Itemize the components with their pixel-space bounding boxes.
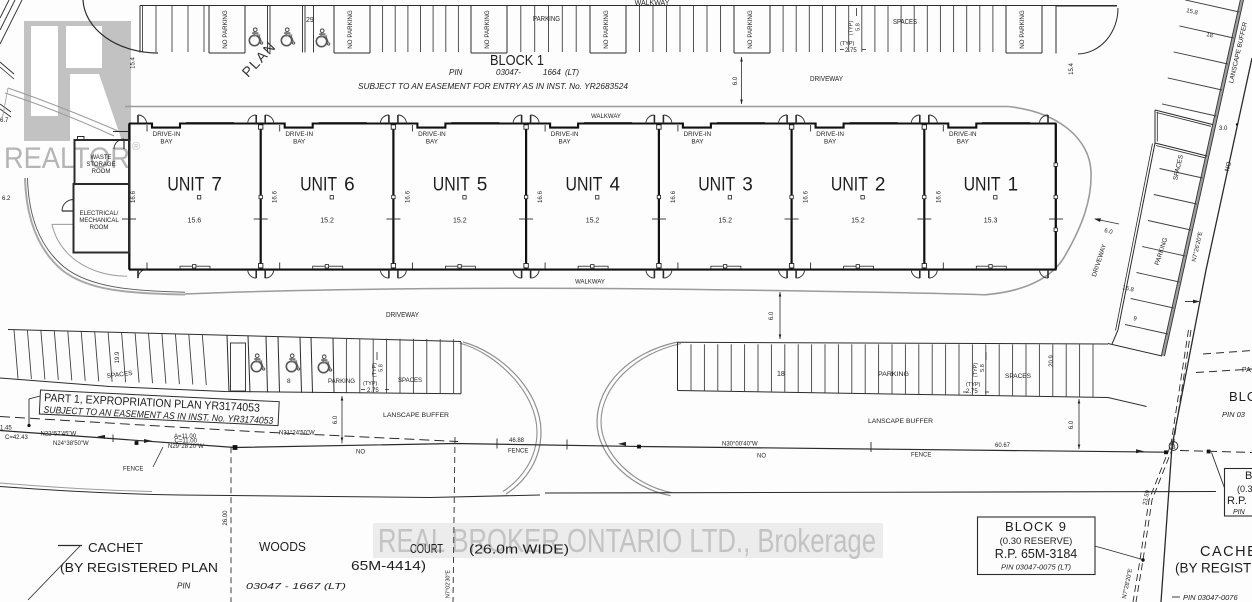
- svg-text:3: 3: [742, 175, 753, 196]
- svg-text:SPACES: SPACES: [1005, 373, 1032, 380]
- svg-text:15.2: 15.2: [851, 218, 865, 225]
- svg-text:16.6: 16.6: [803, 190, 810, 203]
- svg-text:46.88: 46.88: [509, 438, 525, 444]
- svg-text:DRIVEWAY: DRIVEWAY: [386, 312, 419, 319]
- svg-text:DRIVE-IN: DRIVE-IN: [949, 131, 977, 138]
- svg-text:ROOM: ROOM: [90, 225, 109, 231]
- svg-text:REAL BROKER ONTARIO LTD., Brok: REAL BROKER ONTARIO LTD., Brokerage: [378, 522, 876, 559]
- svg-text:(BY REGISTERED PLAN: (BY REGISTERED PLAN: [60, 560, 218, 575]
- svg-text:PIN 03047-0076: PIN 03047-0076: [1183, 593, 1238, 602]
- svg-text:2: 2: [875, 175, 886, 196]
- svg-text:(TYP): (TYP): [372, 363, 378, 378]
- svg-text:FENCE: FENCE: [911, 453, 931, 459]
- svg-text:PIN 03: PIN 03: [1222, 410, 1246, 419]
- svg-text:B: B: [1245, 470, 1252, 482]
- svg-text:1.45: 1.45: [0, 426, 12, 432]
- svg-text:ROOM: ROOM: [92, 169, 111, 175]
- svg-text:16.6: 16.6: [670, 190, 677, 203]
- svg-text:PIN: PIN: [449, 68, 463, 77]
- svg-text:(LT): (LT): [565, 68, 579, 77]
- svg-text:FENCE: FENCE: [508, 449, 528, 455]
- svg-text:SPACES: SPACES: [893, 19, 917, 26]
- svg-text:DRIVE-IN: DRIVE-IN: [816, 131, 844, 138]
- svg-text:26.00: 26.00: [223, 510, 229, 526]
- svg-text:LANSCAPE BUFFER: LANSCAPE BUFFER: [868, 418, 933, 425]
- svg-text:NO: NO: [757, 454, 766, 460]
- svg-text:6.0: 6.0: [733, 76, 739, 85]
- svg-text:DRIVE-IN: DRIVE-IN: [285, 131, 313, 138]
- svg-text:PA: PA: [1242, 367, 1251, 374]
- svg-text:2.75: 2.75: [966, 389, 978, 395]
- svg-text:16.6: 16.6: [935, 190, 942, 203]
- svg-text:(0.3: (0.3: [1237, 484, 1252, 494]
- svg-text:UNIT: UNIT: [831, 175, 868, 196]
- svg-text:NO PARKING: NO PARKING: [222, 10, 229, 49]
- svg-text:DRIVEWAY: DRIVEWAY: [810, 76, 843, 83]
- svg-text:15.3: 15.3: [984, 218, 998, 225]
- svg-text:65M-4414): 65M-4414): [351, 558, 426, 573]
- svg-text:15.6: 15.6: [188, 218, 202, 225]
- svg-text:(BY REGIST: (BY REGIST: [1175, 561, 1251, 576]
- svg-text:BAY: BAY: [293, 139, 306, 146]
- svg-text:(0.30 RESERVE): (0.30 RESERVE): [1000, 536, 1073, 547]
- svg-text:LANSCAPE BUFFER: LANSCAPE BUFFER: [383, 412, 449, 419]
- svg-text:N29°28'20"W: N29°28'20"W: [168, 444, 204, 450]
- svg-text:FENCE: FENCE: [123, 467, 143, 473]
- svg-text:C=42.43: C=42.43: [5, 435, 29, 441]
- svg-text:R.P.: R.P.: [1227, 495, 1247, 507]
- svg-text:NO PARKING: NO PARKING: [603, 10, 610, 49]
- svg-text:4: 4: [610, 175, 621, 196]
- svg-text:03047-: 03047-: [496, 68, 521, 77]
- svg-text:(TYP): (TYP): [966, 382, 981, 388]
- svg-text:BAY: BAY: [691, 139, 704, 146]
- svg-text:5: 5: [477, 175, 488, 196]
- svg-text:5.8: 5.8: [856, 23, 862, 31]
- svg-text:5.8: 5.8: [980, 364, 986, 372]
- svg-text:3.0: 3.0: [1219, 126, 1228, 132]
- svg-text:SPACES: SPACES: [398, 377, 423, 384]
- svg-text:DRIVE-IN: DRIVE-IN: [684, 131, 712, 138]
- svg-text:60.67: 60.67: [995, 443, 1011, 449]
- svg-text:NO PARKING: NO PARKING: [747, 10, 754, 49]
- svg-text:PIN 03047-0075 (LT): PIN 03047-0075 (LT): [1001, 563, 1071, 572]
- svg-text:15.2: 15.2: [586, 218, 600, 225]
- svg-text:ELECTRICAL/: ELECTRICAL/: [80, 211, 119, 217]
- svg-text:6.0: 6.0: [1069, 420, 1075, 429]
- svg-text:COURT: COURT: [410, 541, 443, 556]
- svg-text:16.6: 16.6: [537, 190, 544, 203]
- svg-text:6: 6: [344, 175, 355, 196]
- svg-text:15.2: 15.2: [320, 218, 334, 225]
- svg-text:R.P. 65M-3184: R.P. 65M-3184: [995, 547, 1078, 561]
- svg-text:BLOCK 1: BLOCK 1: [490, 52, 544, 69]
- svg-text:STORAGE: STORAGE: [86, 162, 115, 168]
- svg-text:WOODS: WOODS: [259, 539, 306, 554]
- svg-text:2.75: 2.75: [845, 48, 857, 54]
- svg-text:2.75: 2.75: [367, 388, 379, 394]
- svg-text:WASTE: WASTE: [90, 155, 111, 161]
- svg-text:16.6: 16.6: [130, 190, 137, 203]
- svg-text:N30°00'40"W: N30°00'40"W: [722, 442, 758, 448]
- svg-text:UNIT: UNIT: [167, 175, 204, 196]
- svg-text:N7°02'30"E: N7°02'30"E: [446, 570, 452, 598]
- svg-text:15.4: 15.4: [1069, 63, 1075, 75]
- svg-text:BLO: BLO: [1229, 389, 1252, 404]
- svg-text:CACHET: CACHET: [88, 540, 143, 555]
- svg-text:6.2: 6.2: [2, 196, 11, 202]
- svg-text:16.6: 16.6: [272, 190, 279, 203]
- svg-text:BAY: BAY: [957, 139, 970, 146]
- svg-text:BAY: BAY: [426, 139, 439, 146]
- svg-text:20.9: 20.9: [1049, 355, 1055, 367]
- svg-text:DRIVE-IN: DRIVE-IN: [551, 131, 579, 138]
- svg-text:7: 7: [211, 175, 222, 196]
- svg-text:NO: NO: [356, 450, 365, 456]
- svg-text:NO PARKING: NO PARKING: [484, 10, 491, 49]
- svg-text:B: B: [1171, 444, 1175, 451]
- svg-text:(TYP): (TYP): [973, 363, 979, 378]
- svg-text:BAY: BAY: [559, 139, 572, 146]
- svg-text:BAY: BAY: [160, 139, 173, 146]
- svg-text:BLOCK 9: BLOCK 9: [1005, 519, 1067, 534]
- svg-text:(TYP): (TYP): [363, 381, 378, 387]
- svg-text:1: 1: [1008, 175, 1019, 196]
- svg-text:DRIVE-IN: DRIVE-IN: [153, 131, 181, 138]
- svg-text:PARKING: PARKING: [878, 371, 909, 378]
- svg-text:29: 29: [306, 17, 314, 24]
- svg-text:18: 18: [777, 371, 785, 378]
- svg-text:19.9: 19.9: [115, 351, 121, 363]
- svg-text:BAY: BAY: [824, 139, 837, 146]
- svg-text:®: ®: [132, 141, 140, 153]
- svg-text:15.2: 15.2: [453, 218, 467, 225]
- svg-text:16.6: 16.6: [404, 190, 411, 203]
- svg-text:(26.0m WIDE): (26.0m WIDE): [469, 542, 569, 557]
- svg-text:UNIT: UNIT: [300, 175, 337, 196]
- svg-text:UNIT: UNIT: [566, 175, 603, 196]
- svg-text:N24°38'50"W: N24°38'50"W: [53, 441, 89, 447]
- svg-text:WALKWAY: WALKWAY: [635, 0, 670, 7]
- svg-text:(TYP): (TYP): [849, 21, 855, 36]
- svg-text:6.0: 6.0: [333, 415, 339, 424]
- svg-text:UNIT: UNIT: [433, 175, 470, 196]
- svg-text:MECHANICAL: MECHANICAL: [79, 218, 119, 224]
- svg-text:PARKING: PARKING: [533, 16, 560, 23]
- svg-text:PIN: PIN: [177, 582, 191, 591]
- svg-text:5.8: 5.8: [379, 364, 385, 372]
- svg-text:PIN: PIN: [1233, 509, 1246, 516]
- svg-text:WALKWAY: WALKWAY: [575, 280, 605, 286]
- svg-text:SUBJECT TO AN EASEMENT FOR: SUBJECT TO AN EASEMENT FOR ENTRY AS IN I…: [358, 81, 628, 91]
- svg-text:1664: 1664: [543, 68, 561, 77]
- svg-text:6.0: 6.0: [769, 311, 775, 320]
- svg-text:(TYP): (TYP): [840, 41, 855, 47]
- svg-text:UNIT: UNIT: [964, 175, 1001, 196]
- svg-text:DRIVE-IN: DRIVE-IN: [418, 131, 446, 138]
- svg-text:15.2: 15.2: [718, 218, 732, 225]
- svg-text:WALKWAY: WALKWAY: [591, 114, 621, 120]
- svg-text:8: 8: [287, 378, 291, 385]
- svg-text:N31°24'50"W: N31°24'50"W: [279, 431, 315, 437]
- svg-text:UNIT: UNIT: [698, 175, 735, 196]
- svg-text:15.4: 15.4: [131, 57, 137, 69]
- svg-text:NO PARKING: NO PARKING: [1019, 10, 1026, 49]
- svg-text:6.7: 6.7: [0, 118, 9, 124]
- svg-text:03047 - 1667 (LT): 03047 - 1667 (LT): [246, 582, 347, 591]
- svg-text:PARKING: PARKING: [328, 378, 355, 385]
- svg-text:N22°57'45"W: N22°57'45"W: [41, 432, 77, 438]
- svg-text:CACHET: CACHET: [1200, 544, 1252, 560]
- svg-text:NO PARKING: NO PARKING: [347, 10, 354, 49]
